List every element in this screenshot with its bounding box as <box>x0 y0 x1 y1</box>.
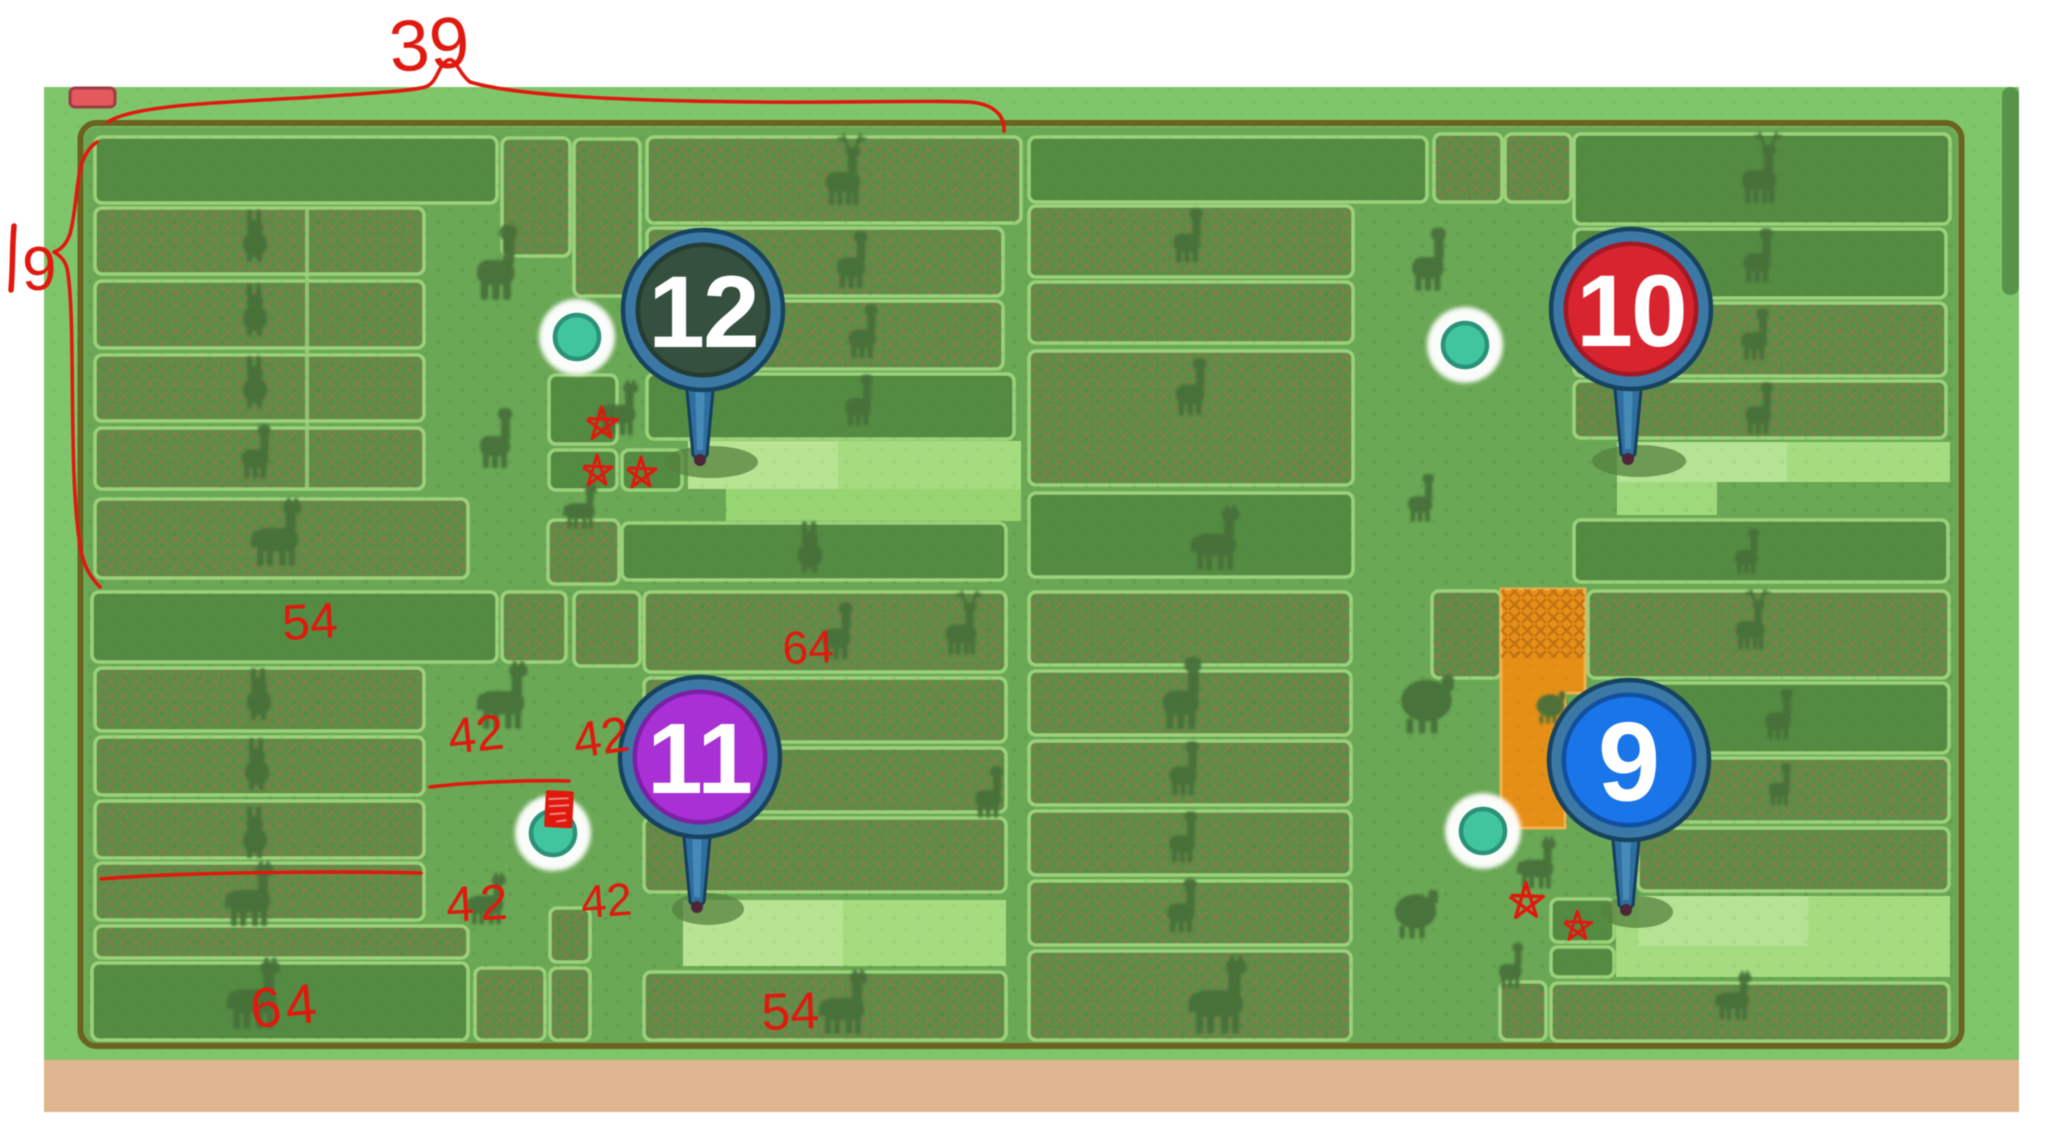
svg-text:12: 12 <box>648 255 757 369</box>
svg-text:54: 54 <box>281 592 339 651</box>
svg-text:54: 54 <box>760 982 820 1042</box>
svg-text:42: 42 <box>445 874 515 933</box>
svg-text:64: 64 <box>782 620 835 674</box>
svg-text:11: 11 <box>647 703 753 815</box>
svg-text:42: 42 <box>579 873 634 928</box>
svg-text:42: 42 <box>445 703 506 765</box>
svg-text:10: 10 <box>1576 254 1685 368</box>
svg-text:9: 9 <box>22 235 56 304</box>
svg-text:64: 64 <box>248 971 324 1040</box>
svg-text:9: 9 <box>1598 700 1660 825</box>
svg-text:39: 39 <box>387 3 472 88</box>
svg-text:42: 42 <box>570 706 633 769</box>
